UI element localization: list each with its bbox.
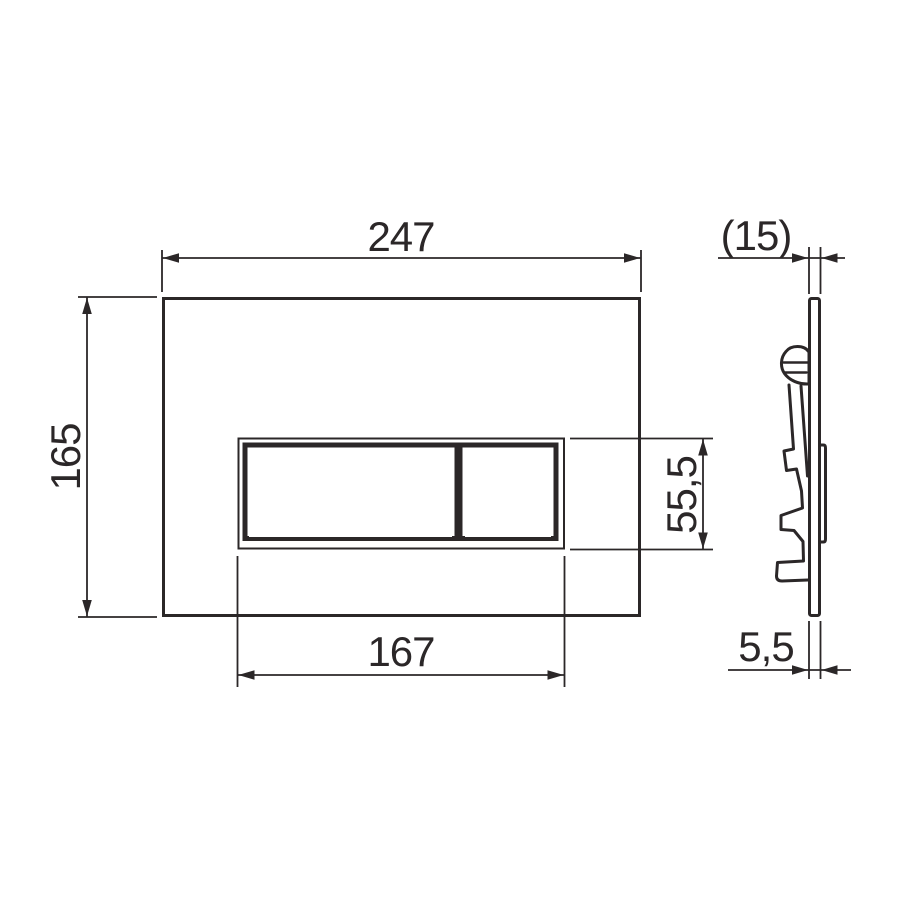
- flush-plate-side-profile: [810, 299, 820, 616]
- arrowhead-right: [624, 253, 640, 263]
- dim-label-button-panel-width: 167: [367, 628, 434, 675]
- front-view: [164, 299, 640, 616]
- dim-depth: (15): [718, 212, 845, 294]
- arrowhead-right: [822, 253, 838, 263]
- side-view: [777, 299, 826, 616]
- dim-label-plate-height: 165: [42, 423, 89, 490]
- clip-lever-inner-edge: [801, 386, 808, 476]
- arrowhead-left: [163, 253, 179, 263]
- arrowhead-top: [698, 439, 708, 455]
- button-panel: [239, 439, 565, 549]
- technical-drawing: 247 165 55,5: [0, 0, 900, 900]
- arrowhead-top: [82, 298, 92, 314]
- mounting-clip: [777, 347, 810, 582]
- large-flush-button: [249, 449, 452, 537]
- drawing-canvas: 247 165 55,5: [0, 0, 900, 900]
- dim-plate-width: 247: [162, 213, 641, 292]
- extension-lines: [809, 247, 821, 294]
- dim-label-thickness: 5,5: [738, 623, 793, 670]
- dim-label-button-panel-height: 55,5: [658, 456, 705, 534]
- clip-head: [781, 347, 809, 385]
- small-flush-button: [465, 449, 551, 537]
- arrowhead-left: [238, 670, 254, 680]
- extension-lines: [78, 297, 157, 617]
- arrowhead-left: [792, 665, 808, 675]
- dim-label-depth: (15): [721, 212, 792, 259]
- arrowhead-left: [792, 253, 808, 263]
- arrowhead-right: [548, 670, 564, 680]
- arrowhead-bottom: [698, 533, 708, 549]
- arrowhead-right: [822, 665, 838, 675]
- dim-plate-height: 165: [42, 297, 157, 617]
- dim-thickness: 5,5: [728, 621, 851, 679]
- arrowhead-bottom: [82, 600, 92, 616]
- dim-label-plate-width: 247: [367, 213, 434, 260]
